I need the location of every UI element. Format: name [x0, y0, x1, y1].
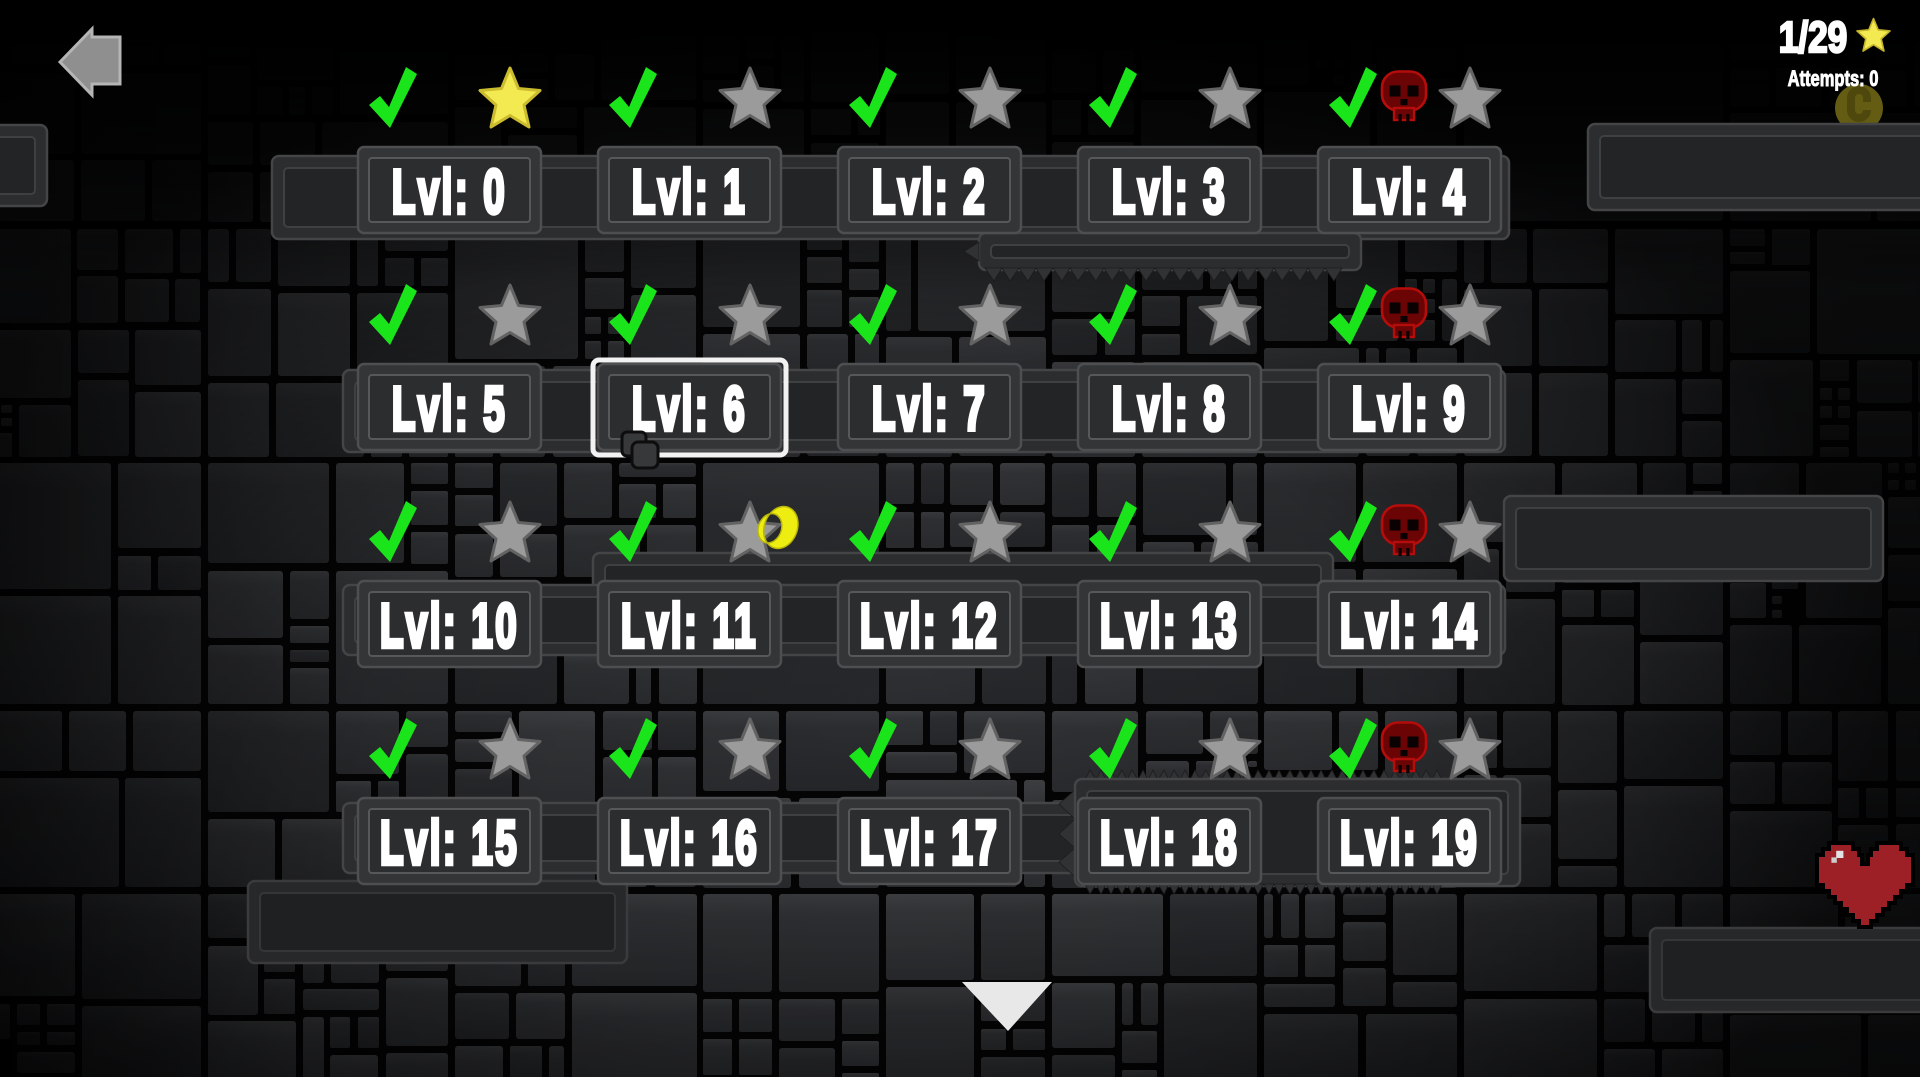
svg-text:Lvl: 6: Lvl: 6: [632, 374, 747, 444]
svg-text:Lvl: 19: Lvl: 19: [1340, 808, 1479, 878]
svg-text:Lvl: 11: Lvl: 11: [621, 591, 758, 661]
svg-text:Lvl: 2: Lvl: 2: [872, 157, 987, 227]
svg-text:Lvl: 0: Lvl: 0: [392, 157, 507, 227]
svg-text:Lvl: 12: Lvl: 12: [860, 591, 999, 661]
svg-text:Lvl: 7: Lvl: 7: [872, 374, 987, 444]
svg-text:Lvl: 3: Lvl: 3: [1112, 157, 1227, 227]
svg-text:Lvl: 13: Lvl: 13: [1100, 591, 1239, 661]
svg-text:Lvl: 10: Lvl: 10: [380, 591, 519, 661]
svg-text:Lvl: 9: Lvl: 9: [1352, 374, 1467, 444]
svg-text:Lvl: 14: Lvl: 14: [1340, 591, 1479, 661]
svg-text:Lvl: 4: Lvl: 4: [1352, 157, 1467, 227]
svg-text:Lvl: 1: Lvl: 1: [632, 157, 747, 227]
svg-text:Lvl: 15: Lvl: 15: [380, 808, 519, 878]
svg-text:Lvl: 16: Lvl: 16: [620, 808, 759, 878]
svg-text:1/29: 1/29: [1779, 13, 1847, 62]
svg-text:Lvl: 17: Lvl: 17: [860, 808, 999, 878]
svg-text:Lvl: 5: Lvl: 5: [392, 374, 507, 444]
svg-text:Lvl: 8: Lvl: 8: [1112, 374, 1227, 444]
svg-text:Lvl: 18: Lvl: 18: [1100, 808, 1239, 878]
svg-text:Attempts: 0: Attempts: 0: [1788, 67, 1879, 92]
